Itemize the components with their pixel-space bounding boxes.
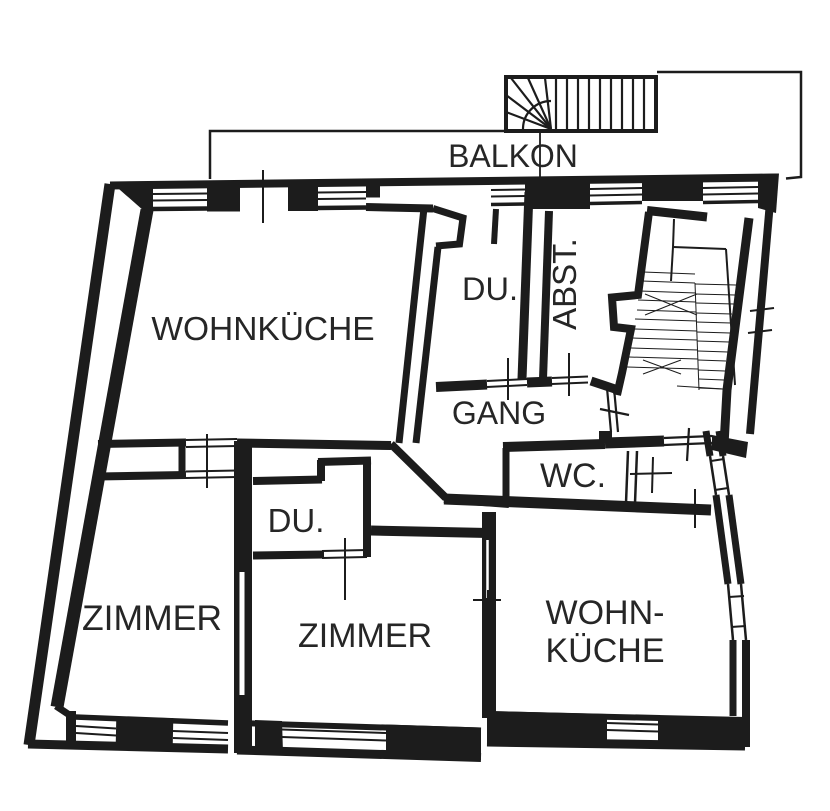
svg-text:WOHN-: WOHN- (546, 594, 665, 632)
svg-text:ABST.: ABST. (546, 238, 583, 330)
svg-text:DU.: DU. (268, 502, 325, 539)
svg-text:BALKON: BALKON (448, 138, 578, 174)
svg-text:ZIMMER: ZIMMER (298, 617, 432, 655)
svg-text:WOHNKÜCHE: WOHNKÜCHE (151, 311, 374, 348)
svg-text:WC.: WC. (540, 457, 606, 495)
svg-text:KÜCHE: KÜCHE (545, 632, 664, 670)
svg-text:ZIMMER: ZIMMER (82, 598, 222, 638)
svg-text:GANG: GANG (452, 395, 546, 431)
svg-text:DU.: DU. (462, 271, 518, 307)
